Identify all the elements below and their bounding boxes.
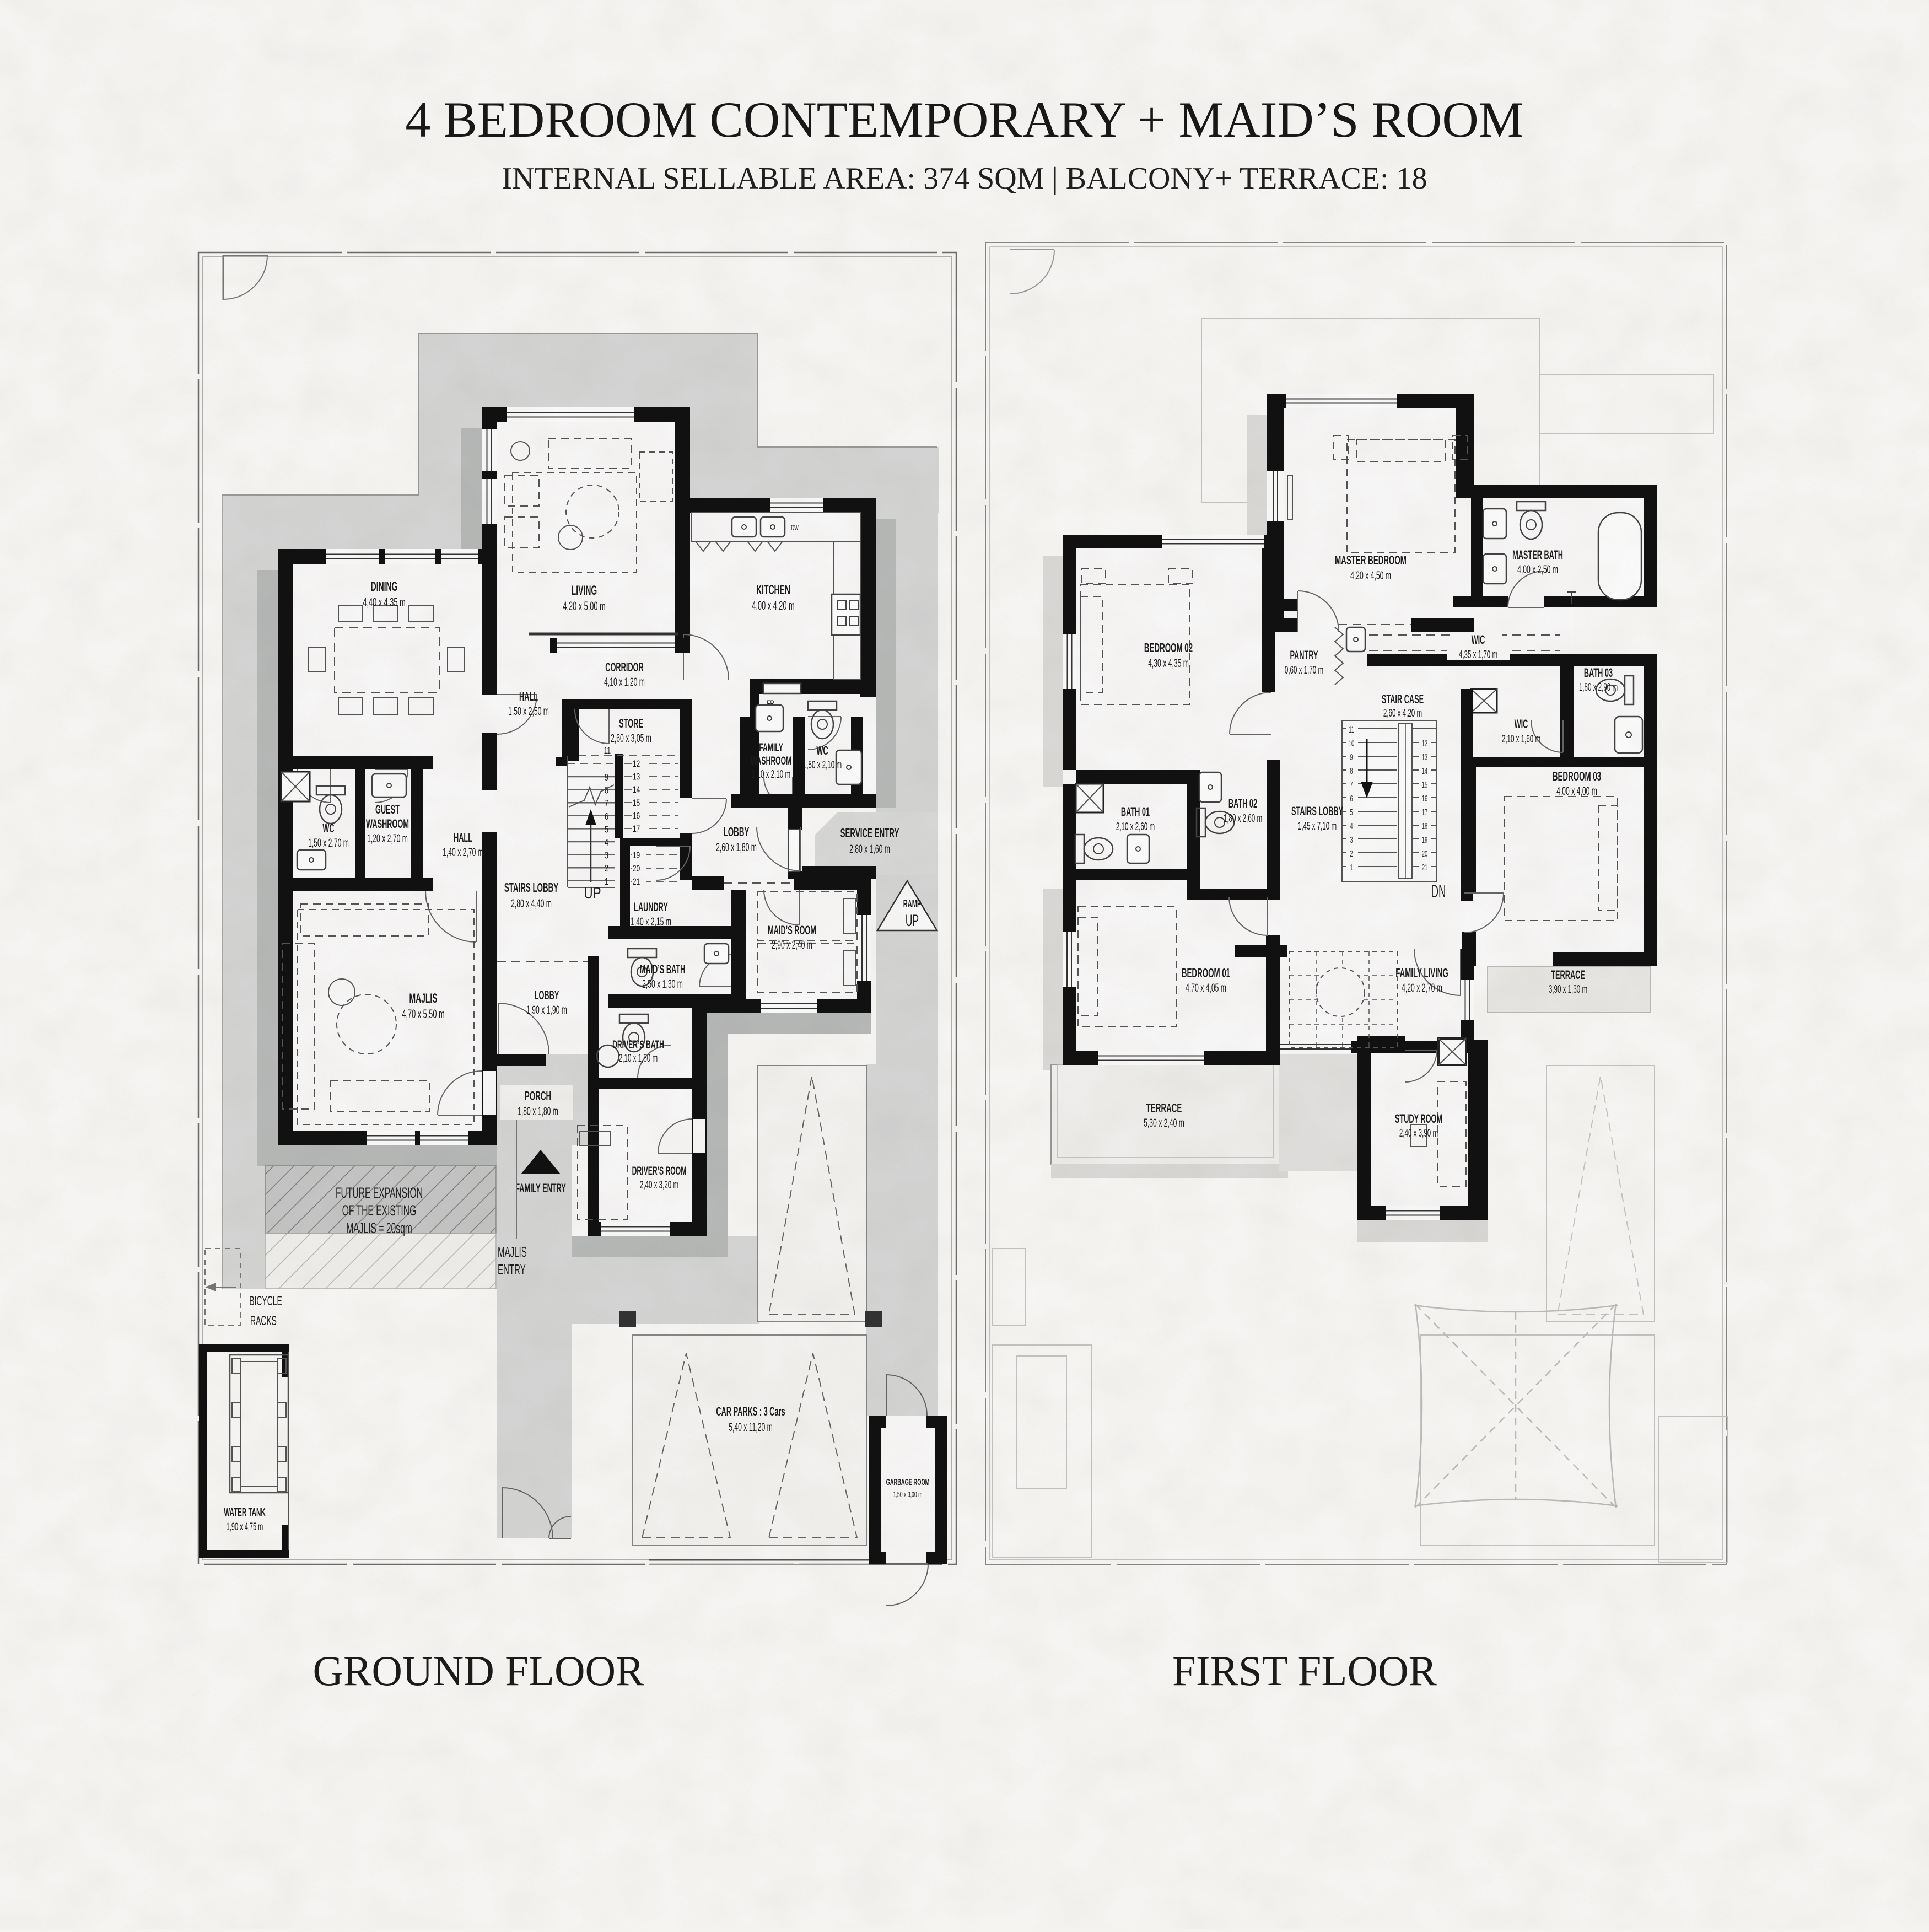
svg-text:TERRACE: TERRACE [1551, 968, 1585, 981]
svg-text:FUTURE EXPANSION: FUTURE EXPANSION [336, 1185, 423, 1202]
svg-text:15: 15 [633, 798, 640, 809]
svg-text:19: 19 [633, 851, 640, 861]
svg-text:2,10 x 1,80 m: 2,10 x 1,80 m [619, 1052, 658, 1064]
svg-text:19: 19 [1422, 835, 1427, 844]
svg-text:2: 2 [1350, 848, 1353, 858]
svg-text:12: 12 [1422, 738, 1427, 748]
svg-text:KITCHEN: KITCHEN [756, 583, 790, 598]
svg-text:4,30 x 4,35 m: 4,30 x 4,35 m [1148, 656, 1189, 669]
svg-text:20: 20 [633, 864, 640, 874]
svg-text:7: 7 [605, 798, 608, 809]
svg-text:5: 5 [1350, 807, 1353, 817]
svg-text:3,90 x 1,30 m: 3,90 x 1,30 m [1549, 983, 1587, 995]
svg-text:21: 21 [633, 877, 640, 887]
svg-text:DRIVER’S BATH: DRIVER’S BATH [612, 1037, 664, 1051]
svg-text:FAMILY: FAMILY [759, 740, 783, 754]
svg-text:BEDROOM 02: BEDROOM 02 [1144, 641, 1193, 655]
svg-text:UP: UP [584, 884, 601, 902]
svg-text:WC: WC [322, 821, 334, 835]
svg-text:4,20 x 5,00 m: 4,20 x 5,00 m [563, 599, 605, 612]
svg-text:4,00 x 4,00 m: 4,00 x 4,00 m [1556, 784, 1597, 797]
svg-text:10: 10 [1349, 738, 1354, 748]
svg-text:2,40 x 3,90 m: 2,40 x 3,90 m [1399, 1127, 1438, 1139]
svg-text:LAUNDRY: LAUNDRY [634, 900, 668, 913]
svg-text:6: 6 [605, 811, 608, 822]
svg-text:LOBBY: LOBBY [535, 988, 559, 1002]
svg-text:6: 6 [1350, 793, 1353, 803]
svg-text:5: 5 [605, 824, 608, 835]
svg-text:21: 21 [1422, 862, 1427, 872]
svg-text:1: 1 [1350, 862, 1353, 872]
svg-text:2,80 x 1,60 m: 2,80 x 1,60 m [849, 842, 890, 855]
svg-text:4: 4 [1350, 821, 1353, 831]
svg-text:3: 3 [605, 851, 608, 862]
svg-text:13: 13 [1422, 752, 1427, 762]
svg-text:MAJLIS = 20sqm: MAJLIS = 20sqm [346, 1220, 412, 1237]
svg-text:GROUND FLOOR: GROUND FLOOR [312, 1647, 644, 1694]
svg-text:BEDROOM 01: BEDROOM 01 [1182, 966, 1230, 980]
svg-text:12: 12 [633, 759, 640, 769]
svg-text:BICYCLE: BICYCLE [249, 1294, 282, 1309]
svg-text:1,50 x 2,50 m: 1,50 x 2,50 m [508, 704, 549, 717]
svg-text:HALL: HALL [454, 831, 472, 844]
svg-text:MASTER BATH: MASTER BATH [1512, 548, 1563, 561]
svg-text:1,50 x 2,10 m: 1,50 x 2,10 m [803, 759, 842, 771]
svg-text:STUDY ROOM: STUDY ROOM [1395, 1112, 1442, 1125]
svg-text:2,90 x 2,40 m: 2,90 x 2,40 m [772, 938, 812, 951]
svg-text:MASTER BEDROOM: MASTER BEDROOM [1335, 553, 1407, 567]
svg-text:2,60 x 3,05 m: 2,60 x 3,05 m [611, 731, 651, 744]
svg-text:1,40 x 2,15 m: 1,40 x 2,15 m [631, 914, 671, 928]
svg-text:WIC: WIC [1515, 717, 1528, 730]
svg-text:1,50 x 3,00 m: 1,50 x 3,00 m [893, 1490, 923, 1499]
svg-text:2,40 x 3,20 m: 2,40 x 3,20 m [640, 1179, 678, 1191]
svg-text:1,50 x 2,70 m: 1,50 x 2,70 m [308, 836, 349, 849]
svg-text:4,35 x 1,70 m: 4,35 x 1,70 m [1459, 649, 1497, 661]
svg-text:4,20 x 4,50 m: 4,20 x 4,50 m [1350, 568, 1391, 582]
svg-text:2: 2 [605, 863, 608, 874]
svg-text:WASHROOM: WASHROOM [366, 817, 409, 830]
svg-text:4,20 x 2,70 m: 4,20 x 2,70 m [1402, 981, 1442, 994]
svg-text:STAIRS LOBBY: STAIRS LOBBY [504, 880, 559, 895]
svg-text:2,10 x 2,60 m: 2,10 x 2,60 m [1116, 821, 1155, 833]
svg-text:4: 4 [605, 837, 608, 848]
svg-text:STAIRS LOBBY: STAIRS LOBBY [1291, 804, 1343, 817]
svg-text:17: 17 [1422, 807, 1427, 817]
svg-text:8: 8 [1350, 766, 1353, 776]
svg-text:17: 17 [633, 824, 640, 835]
svg-text:UP: UP [906, 912, 919, 930]
svg-text:BATH 02: BATH 02 [1228, 797, 1257, 810]
svg-text:11: 11 [1349, 724, 1354, 734]
svg-text:13: 13 [633, 772, 640, 783]
svg-text:2,60 x 1,80 m: 2,60 x 1,80 m [716, 840, 757, 853]
svg-text:1,80 x 1,80 m: 1,80 x 1,80 m [518, 1104, 558, 1117]
svg-text:DINING: DINING [371, 579, 398, 594]
svg-text:LOBBY: LOBBY [724, 825, 750, 839]
svg-text:4,70 x 5,50 m: 4,70 x 5,50 m [402, 1007, 444, 1020]
svg-text:0,60 x 1,70 m: 0,60 x 1,70 m [1285, 664, 1323, 676]
svg-text:OF THE EXISTING: OF THE EXISTING [342, 1202, 417, 1219]
svg-text:DN: DN [1431, 881, 1446, 902]
svg-text:FIRST FLOOR: FIRST FLOOR [1172, 1647, 1437, 1694]
svg-text:CORRIDOR: CORRIDOR [605, 660, 643, 674]
svg-text:14: 14 [633, 785, 640, 795]
svg-text:5,30 x 2,40 m: 5,30 x 2,40 m [1144, 1116, 1184, 1129]
svg-text:STAIR CASE: STAIR CASE [1382, 692, 1424, 706]
svg-text:2,50 x 1,30 m: 2,50 x 1,30 m [642, 977, 683, 990]
svg-text:DW: DW [791, 524, 799, 532]
svg-text:WASHROOM: WASHROOM [751, 754, 791, 767]
svg-text:1,10 x 2,10 m: 1,10 x 2,10 m [752, 768, 790, 781]
svg-text:PORCH: PORCH [525, 1089, 551, 1103]
svg-text:16: 16 [1422, 793, 1427, 803]
svg-text:1,90 x 1,90 m: 1,90 x 1,90 m [526, 1003, 567, 1016]
svg-text:BATH 01: BATH 01 [1121, 805, 1150, 818]
svg-text:15: 15 [1422, 779, 1427, 789]
svg-text:7: 7 [1350, 779, 1353, 789]
svg-text:STORE: STORE [619, 717, 643, 730]
svg-text:TERRACE: TERRACE [1146, 1101, 1182, 1115]
svg-text:PANTRY: PANTRY [1290, 648, 1318, 661]
svg-text:LIVING: LIVING [572, 583, 597, 598]
svg-text:MAJLIS: MAJLIS [498, 1244, 527, 1260]
svg-text:2,80 x 4,40 m: 2,80 x 4,40 m [511, 896, 552, 910]
svg-text:1,80 x 2,90 m: 1,80 x 2,90 m [1579, 681, 1618, 693]
svg-text:GUEST: GUEST [375, 803, 400, 816]
svg-text:2,60 x 4,20 m: 2,60 x 4,20 m [1383, 707, 1422, 719]
svg-text:FAMILY LIVING: FAMILY LIVING [1395, 966, 1448, 980]
svg-text:WC: WC [816, 744, 828, 757]
svg-text:1,40 x 2,70 m: 1,40 x 2,70 m [443, 845, 483, 858]
svg-text:5,40 x 11,20 m: 5,40 x 11,20 m [729, 1420, 773, 1433]
svg-text:4,00 x 2,50 m: 4,00 x 2,50 m [1517, 562, 1558, 575]
svg-text:4,10 x 1,20 m: 4,10 x 1,20 m [604, 675, 645, 688]
svg-text:4,40 x 4,35 m: 4,40 x 4,35 m [363, 595, 405, 609]
svg-text:14: 14 [1422, 766, 1427, 776]
svg-text:11: 11 [604, 746, 611, 756]
svg-text:RACKS: RACKS [250, 1314, 277, 1328]
svg-text:MAID’S ROOM: MAID’S ROOM [768, 923, 816, 937]
svg-text:MAID’S BATH: MAID’S BATH [640, 962, 686, 976]
svg-text:1,80 x 2,60 m: 1,80 x 2,60 m [1224, 812, 1262, 825]
svg-text:3: 3 [1350, 835, 1353, 844]
svg-text:4 BEDROOM CONTEMPORARY + MAID’: 4 BEDROOM CONTEMPORARY + MAID’S ROOM [405, 92, 1523, 148]
svg-text:WIC: WIC [1472, 633, 1485, 646]
svg-text:9: 9 [1350, 752, 1353, 762]
svg-text:1,20 x 2,70 m: 1,20 x 2,70 m [367, 831, 408, 844]
svg-text:18: 18 [1422, 821, 1427, 831]
svg-text:HALL: HALL [519, 690, 538, 703]
svg-text:1,45 x 7,10 m: 1,45 x 7,10 m [1298, 820, 1337, 832]
svg-text:16: 16 [633, 811, 640, 821]
svg-text:MAJLIS: MAJLIS [409, 991, 437, 1006]
svg-text:20: 20 [1422, 848, 1427, 858]
svg-text:DRIVER’S ROOM: DRIVER’S ROOM [632, 1164, 687, 1177]
svg-text:WATER TANK: WATER TANK [224, 1506, 266, 1519]
svg-text:GARBAGE ROOM: GARBAGE ROOM [886, 1477, 930, 1487]
svg-text:SERVICE ENTRY: SERVICE ENTRY [840, 826, 899, 840]
svg-text:INTERNAL SELLABLE AREA: 374 SQ: INTERNAL SELLABLE AREA: 374 SQM | BALCON… [502, 162, 1427, 196]
svg-text:FAMILY ENTRY: FAMILY ENTRY [515, 1181, 566, 1194]
svg-text:1,90 x 4,75 m: 1,90 x 4,75 m [227, 1521, 263, 1533]
svg-text:ENTRY: ENTRY [498, 1262, 526, 1278]
svg-text:BEDROOM 03: BEDROOM 03 [1553, 769, 1601, 783]
svg-text:9: 9 [605, 772, 608, 783]
svg-text:4,00 x 4,20 m: 4,00 x 4,20 m [752, 599, 794, 612]
svg-text:1: 1 [605, 876, 608, 887]
svg-text:2,10 x 1,60 m: 2,10 x 1,60 m [1502, 733, 1540, 745]
svg-text:BATH 03: BATH 03 [1584, 666, 1613, 679]
svg-text:CAR PARKS : 3 Cars: CAR PARKS : 3 Cars [716, 1404, 785, 1418]
svg-text:RAMP: RAMP [903, 898, 921, 910]
svg-text:4,70 x 4,05 m: 4,70 x 4,05 m [1186, 981, 1226, 994]
svg-text:8: 8 [605, 785, 608, 797]
